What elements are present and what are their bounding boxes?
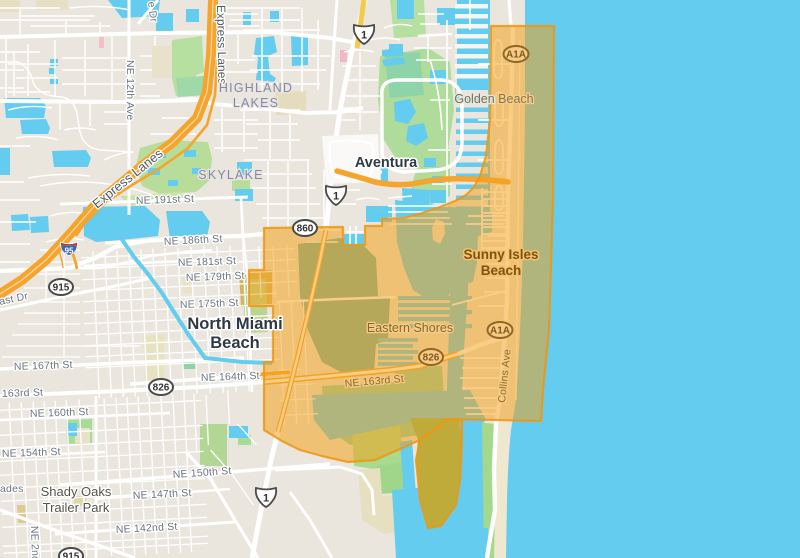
svg-text:1: 1 [263,493,269,505]
svg-text:Beach: Beach [210,334,260,352]
svg-text:ades: ades [0,483,24,495]
svg-text:NE 175th St: NE 175th St [180,297,239,311]
svg-text:163rd St: 163rd St [2,387,44,400]
svg-text:Aventura: Aventura [355,155,418,171]
svg-text:Beach: Beach [481,263,522,278]
svg-text:Express Lanes: Express Lanes [214,5,229,85]
svg-text:NE 179th St: NE 179th St [186,270,245,284]
svg-text:NE 2nd Av: NE 2nd Av [28,526,42,558]
svg-text:HIGHLAND: HIGHLAND [219,81,293,95]
svg-text:NE 164th St: NE 164th St [201,370,260,384]
svg-text:NE 181st St: NE 181st St [178,255,237,269]
svg-text:Eastern Shores: Eastern Shores [367,321,453,335]
svg-text:e Dr: e Dr [145,1,159,23]
svg-text:826: 826 [153,383,170,394]
svg-text:NE 154th St: NE 154th St [2,446,61,460]
svg-text:NE 191st St: NE 191st St [136,193,195,207]
svg-text:860: 860 [297,224,314,235]
svg-text:North Miami: North Miami [187,315,282,333]
svg-text:LAKES: LAKES [233,96,279,110]
svg-text:A1A: A1A [490,326,510,337]
svg-text:Sunny Isles: Sunny Isles [463,247,538,262]
svg-text:Trailer Park: Trailer Park [43,500,110,515]
svg-text:NE 167th St: NE 167th St [14,359,73,373]
svg-text:1: 1 [333,191,339,203]
svg-text:95: 95 [65,246,74,255]
svg-text:1: 1 [361,30,367,42]
svg-text:915: 915 [53,283,70,294]
svg-text:NE 160th St: NE 160th St [30,406,89,420]
svg-text:Golden Beach: Golden Beach [454,92,533,106]
svg-text:915: 915 [63,552,80,558]
svg-text:SKYLAKE: SKYLAKE [198,168,263,182]
svg-text:NE 12th Ave: NE 12th Ave [124,60,136,120]
svg-text:A1A: A1A [506,50,526,61]
svg-text:826: 826 [423,353,440,364]
svg-text:Shady Oaks: Shady Oaks [41,484,112,499]
